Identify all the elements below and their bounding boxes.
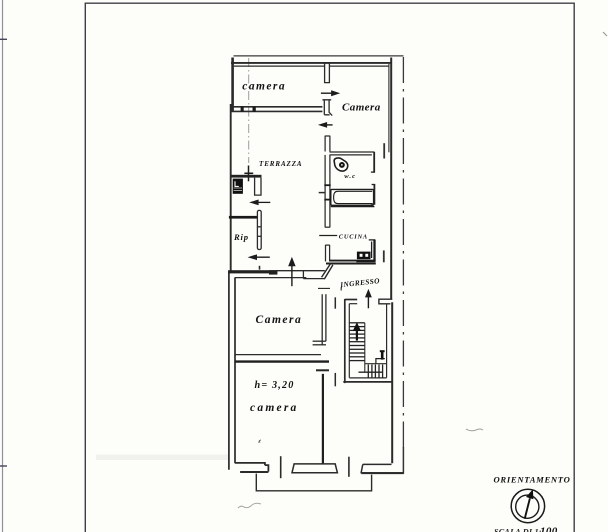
svg-text:Rip: Rip (233, 232, 249, 242)
svg-text:ORIENTAMENTO: ORIENTAMENTO (494, 475, 571, 485)
svg-text:camera: camera (250, 402, 298, 414)
svg-text:camera: camera (242, 80, 285, 92)
svg-text:h= 3,20: h= 3,20 (255, 380, 295, 391)
svg-text:CUCINA: CUCINA (339, 233, 368, 240)
svg-text:TERRAZZA: TERRAZZA (259, 160, 303, 168)
svg-text:Camera: Camera (342, 101, 381, 113)
svg-text:INGRESSO: INGRESSO (339, 276, 381, 289)
svg-text:100: 100 (540, 526, 558, 532)
svg-text:Camera: Camera (256, 314, 303, 326)
svg-text:w.c: w.c (344, 173, 356, 180)
svg-text:SCALA DI 1:: SCALA DI 1: (494, 528, 542, 532)
